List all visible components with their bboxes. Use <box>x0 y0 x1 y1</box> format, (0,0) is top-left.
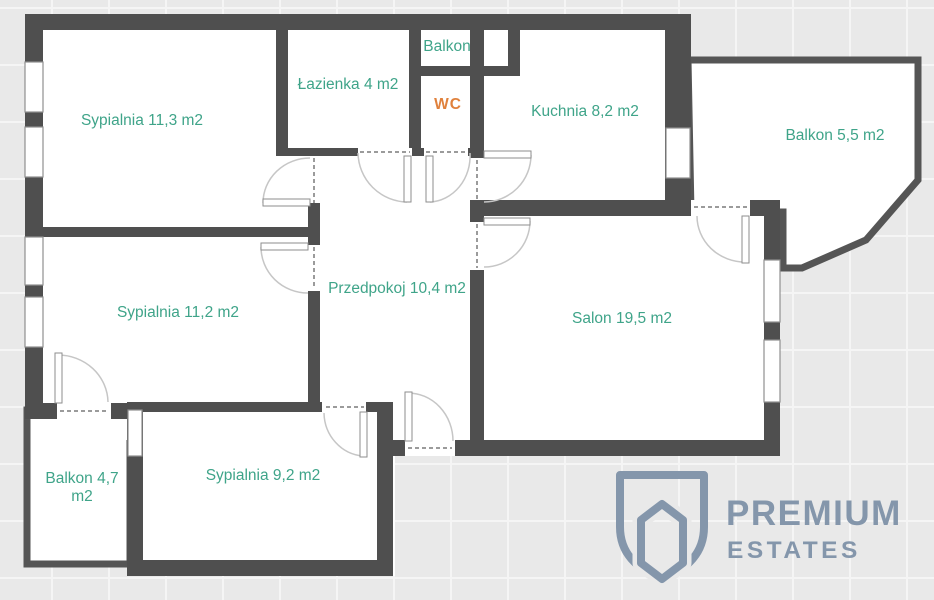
wall <box>308 291 320 402</box>
wall <box>470 270 484 440</box>
wall <box>470 30 484 158</box>
wall <box>412 148 424 156</box>
wall <box>25 14 691 30</box>
wall <box>25 403 57 419</box>
window <box>764 340 780 402</box>
window <box>25 237 43 285</box>
wall <box>308 203 320 245</box>
window <box>764 260 780 322</box>
room-label-balkon-gorny: Balkon <box>423 38 470 56</box>
room-label-salon: Salon 19,5 m2 <box>572 310 672 328</box>
wall <box>409 66 520 76</box>
premium-estates-shield-icon <box>620 475 704 580</box>
wall <box>25 227 320 237</box>
room-label-kuchnia: Kuchnia 8,2 m2 <box>531 103 639 121</box>
floor-plan: PREMIUM ESTATES Sypialnia 11,3 m2 Łazien… <box>0 0 934 600</box>
wall <box>276 30 288 148</box>
door-leaf <box>261 243 308 250</box>
window <box>666 128 690 178</box>
wall <box>409 30 421 148</box>
room-label-przedpokoj: Przedpokoj 10,4 m2 <box>328 280 466 298</box>
room-label-sypialnia-11-2: Sypialnia 11,2 m2 <box>117 304 239 322</box>
room-label-sypialnia-9-2: Sypialnia 9,2 m2 <box>206 467 321 485</box>
door-leaf <box>263 199 310 206</box>
sypialnia-9-2-floor <box>135 405 395 576</box>
premium-estates-logo: PREMIUM ESTATES <box>620 475 902 580</box>
wall <box>143 402 322 412</box>
room-label-wc: WC <box>434 96 462 114</box>
wall <box>276 148 358 156</box>
room-label-sypialnia-11-3: Sypialnia 11,3 m2 <box>81 112 203 130</box>
wall <box>366 402 377 412</box>
door-leaf <box>742 216 749 263</box>
wall <box>470 200 665 216</box>
wall <box>665 14 691 216</box>
window <box>128 410 142 456</box>
wall <box>470 203 484 222</box>
door-leaf <box>484 151 531 158</box>
wall <box>508 30 520 76</box>
door-leaf <box>55 353 62 403</box>
window <box>25 62 43 112</box>
floor-plan-svg: PREMIUM ESTATES <box>0 0 934 600</box>
room-label-balkon-prawy: Balkon 5,5 m2 <box>785 127 884 145</box>
door-leaf <box>404 156 411 202</box>
logo-text-premium: PREMIUM <box>726 494 902 533</box>
wall <box>764 200 780 456</box>
door-leaf <box>405 392 412 441</box>
wall <box>127 560 393 576</box>
room-label-balkon-dolny: Balkon 4,7 m2 <box>36 470 128 506</box>
wall <box>377 402 393 576</box>
logo-text-estates: ESTATES <box>727 537 861 564</box>
wall <box>455 440 780 456</box>
door-leaf <box>484 218 530 225</box>
opening <box>691 200 750 216</box>
window <box>25 127 43 177</box>
salon-floor <box>460 200 780 456</box>
window <box>25 297 43 347</box>
door-leaf <box>360 412 367 457</box>
room-label-lazienka: Łazienka 4 m2 <box>298 76 399 94</box>
door-leaf <box>426 156 433 202</box>
